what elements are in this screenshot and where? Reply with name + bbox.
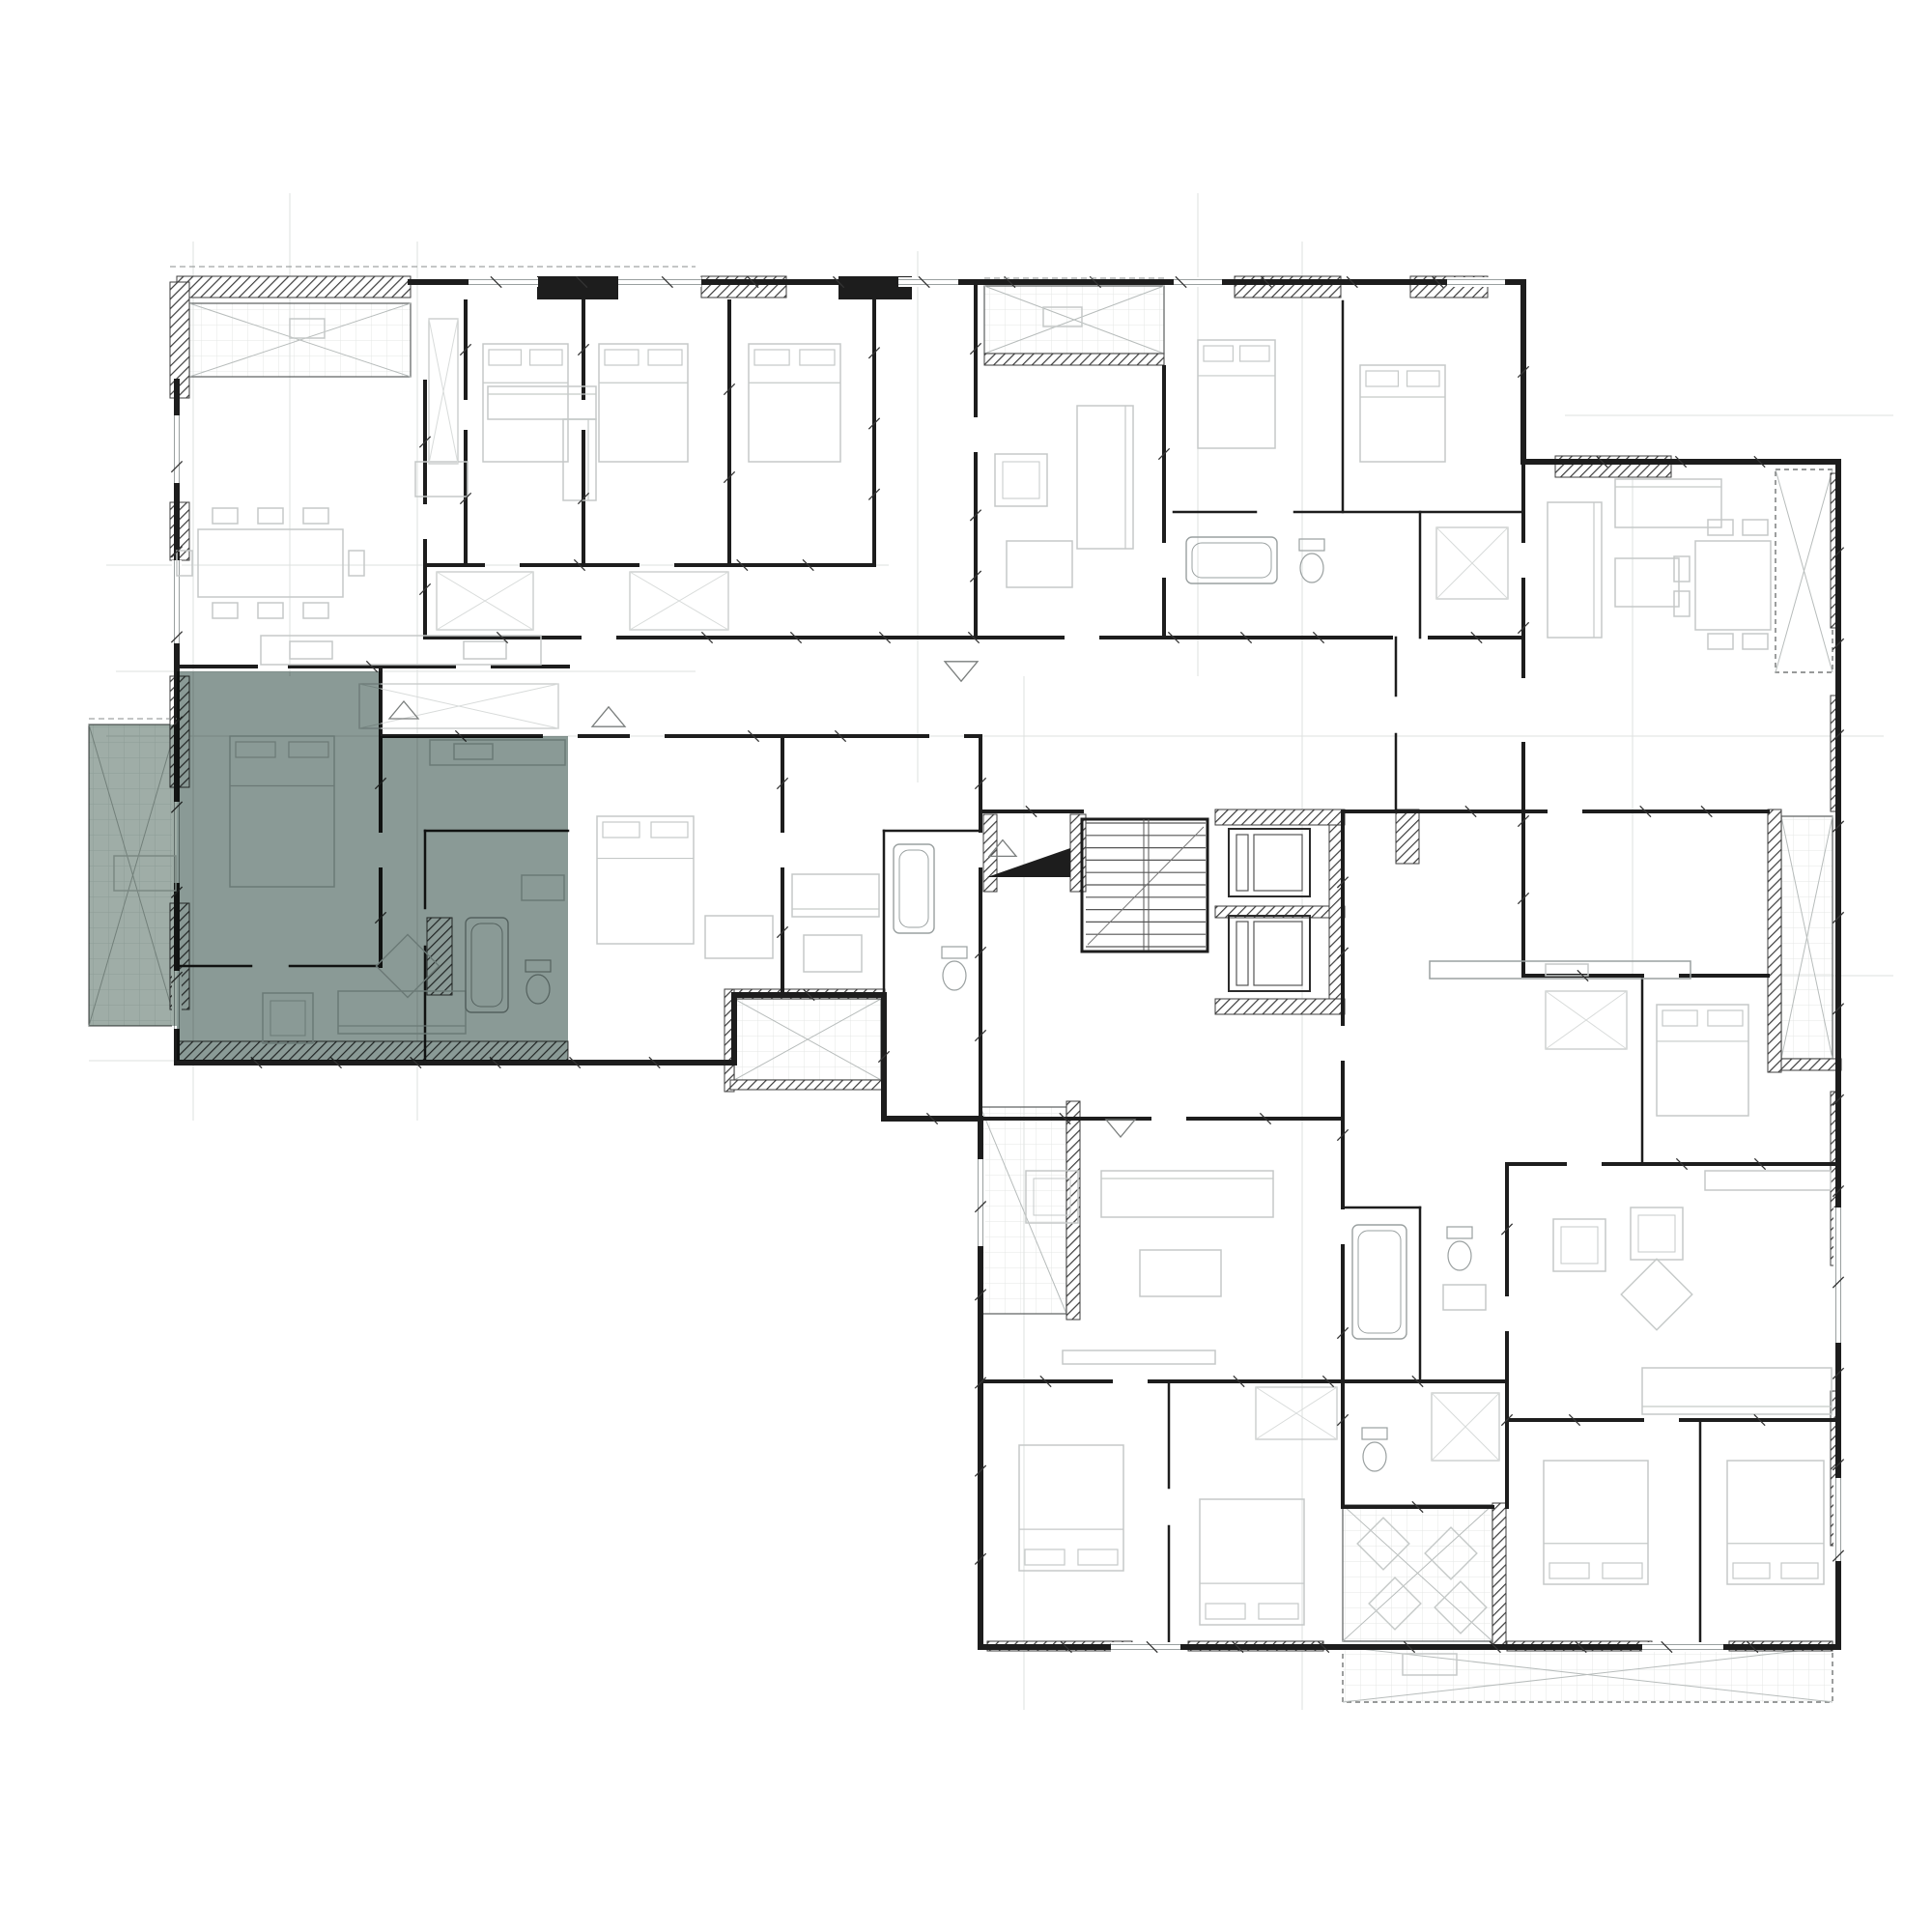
furniture-rect (1695, 541, 1771, 630)
sofa (792, 874, 879, 917)
furniture-rect (1007, 541, 1072, 587)
window-gap (172, 415, 182, 483)
bed-pillow (1206, 1604, 1245, 1619)
bed-pillow (1078, 1549, 1118, 1565)
bed-pillow (651, 822, 688, 838)
furniture-rect (1743, 520, 1768, 535)
furniture-rect (1063, 1350, 1215, 1364)
elevator-cabin (1254, 835, 1302, 891)
bed-pillow (1025, 1549, 1065, 1565)
bathtub (1352, 1225, 1406, 1339)
bathtub (1186, 537, 1277, 583)
bed-pillow (1662, 1010, 1697, 1026)
hatch-wall (1396, 810, 1419, 864)
stair-guard-diagonal (1088, 827, 1204, 945)
bed-pillow (1733, 1563, 1770, 1578)
hatch-wall (1215, 810, 1345, 825)
bed (483, 344, 568, 462)
door-triangle (945, 662, 978, 681)
bed-pillow (530, 350, 562, 365)
bed-pillow (1708, 1010, 1743, 1026)
hatch-wall (1070, 814, 1086, 892)
sofa (1101, 1171, 1273, 1217)
hatch-wall (984, 354, 1164, 365)
window-gap (1833, 1207, 1843, 1343)
bed-pillow (1240, 346, 1269, 361)
furniture-rect (1743, 634, 1768, 649)
furniture-rect (1674, 556, 1690, 582)
armchair-seat (1638, 1215, 1675, 1252)
elevator-cabin (1254, 922, 1302, 985)
hatch-wall (983, 814, 997, 892)
floor-plan-canvas (0, 0, 1932, 1932)
hatch-wall (177, 276, 411, 298)
window-gap (1833, 1478, 1843, 1561)
furniture-rect (1443, 1285, 1486, 1310)
bed (1657, 1005, 1748, 1116)
toilet-bowl (1300, 554, 1323, 582)
bed (1544, 1461, 1648, 1584)
bed (1727, 1461, 1824, 1584)
toilet-tank (942, 947, 967, 958)
furniture-rect (349, 551, 364, 576)
bed-pillow (754, 350, 789, 365)
armchair-seat (1561, 1227, 1598, 1264)
elevator-car (1229, 829, 1310, 896)
bed-pillow (800, 350, 835, 365)
bed-pillow (1549, 1563, 1589, 1578)
door-triangle (1106, 1120, 1135, 1137)
window-gap (1642, 1642, 1723, 1652)
highlight-terrace-region (89, 724, 177, 1026)
bathtub-inner (1192, 543, 1271, 578)
hatch-wall (1492, 1503, 1506, 1648)
furniture-rect (290, 641, 332, 659)
bed-pillow (603, 822, 639, 838)
bed-pillow (1407, 371, 1439, 386)
bathtub-inner (899, 850, 928, 927)
toilet-bowl (1363, 1442, 1386, 1471)
floor-plan-page (0, 0, 1932, 1932)
furniture-rect (1708, 634, 1733, 649)
elevator-car (1229, 916, 1310, 991)
bed (1019, 1445, 1123, 1571)
window-gap (1111, 1642, 1180, 1652)
furniture-rect (258, 508, 283, 524)
bed (597, 816, 694, 944)
furniture-rect (705, 916, 773, 958)
bed-pillow (1603, 1563, 1642, 1578)
furniture-rect (213, 603, 238, 618)
elevator-panel (1236, 835, 1248, 891)
window-gap (1447, 277, 1505, 287)
sofa (1077, 406, 1133, 549)
furniture-rect (1705, 1171, 1831, 1190)
armchair-seat (1003, 462, 1039, 498)
bed-pillow (1781, 1563, 1818, 1578)
sofa (1642, 1368, 1832, 1414)
rotated-furniture (1621, 1259, 1692, 1330)
bed (749, 344, 840, 462)
bed (1198, 340, 1275, 448)
furniture-rect (1140, 1250, 1221, 1296)
hatch-wall (730, 1080, 885, 1090)
window-gap (618, 277, 701, 287)
toilet-tank (1362, 1428, 1387, 1439)
bed (1200, 1499, 1304, 1625)
bed (1360, 365, 1445, 462)
bed-pillow (605, 350, 639, 365)
elevator-panel (1236, 922, 1248, 985)
hatch-wall (1215, 999, 1345, 1014)
furniture-rect (213, 508, 238, 524)
sofa (488, 386, 596, 419)
bed-pillow (648, 350, 682, 365)
bed-pillow (1259, 1604, 1298, 1619)
furniture-rect (1674, 591, 1690, 616)
hatch-wall (1781, 1059, 1841, 1070)
furniture-rect (464, 641, 506, 659)
furniture-rect (303, 603, 328, 618)
hatch-wall (1768, 810, 1781, 1072)
toilet-tank (1299, 539, 1324, 551)
furniture-rect (303, 508, 328, 524)
bed-pillow (1366, 371, 1398, 386)
furniture-rect (258, 603, 283, 618)
door-triangle (592, 707, 625, 726)
hatch-wall (1329, 825, 1343, 999)
toilet-tank (1447, 1227, 1472, 1238)
bed (599, 344, 688, 462)
furniture-rect (198, 529, 343, 597)
furniture-rect (1615, 558, 1679, 607)
furniture-rect (261, 636, 541, 665)
bed-pillow (1204, 346, 1233, 361)
toilet-bowl (1448, 1241, 1471, 1270)
bed-pillow (489, 350, 521, 365)
highlight-layer (89, 671, 568, 1061)
furniture-rect (804, 935, 862, 972)
bathtub-inner (1358, 1231, 1401, 1333)
window-gap (469, 277, 538, 287)
highlight-region (177, 671, 568, 1061)
toilet-bowl (943, 961, 966, 990)
stair-arrow-wedge (987, 848, 1070, 877)
